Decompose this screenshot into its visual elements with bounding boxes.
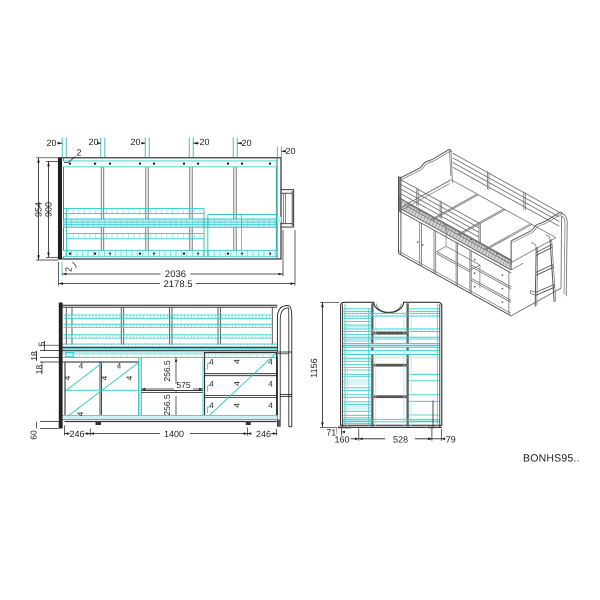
svg-text:1400: 1400 (164, 429, 184, 439)
svg-text:2: 2 (76, 148, 81, 158)
svg-text:900: 900 (44, 202, 54, 217)
svg-text:20: 20 (199, 137, 209, 147)
svg-text:20: 20 (88, 137, 98, 147)
svg-text:20: 20 (130, 137, 140, 147)
svg-text:256.5: 256.5 (162, 360, 172, 382)
svg-text:4: 4 (117, 362, 122, 371)
svg-text:20: 20 (46, 138, 56, 148)
svg-text:20: 20 (241, 138, 251, 148)
svg-text:4: 4 (76, 411, 85, 416)
svg-text:4: 4 (209, 358, 214, 367)
svg-text:4: 4 (233, 403, 242, 408)
svg-text:528: 528 (393, 435, 408, 445)
svg-text:575: 575 (176, 380, 190, 390)
svg-text:18: 18 (34, 365, 44, 375)
svg-text:4: 4 (268, 358, 273, 367)
svg-text:4: 4 (233, 381, 242, 386)
svg-text:246: 246 (69, 429, 84, 439)
svg-text:4: 4 (100, 375, 109, 380)
svg-text:4: 4 (125, 375, 134, 380)
svg-text:60: 60 (29, 430, 39, 440)
svg-text:2: 2 (64, 267, 74, 272)
svg-text:246: 246 (256, 429, 271, 439)
svg-text:4: 4 (233, 359, 242, 364)
svg-text:256.5: 256.5 (162, 394, 172, 416)
svg-text:4: 4 (63, 375, 72, 380)
svg-text:BONHS95..: BONHS95.. (523, 453, 580, 465)
svg-text:18: 18 (29, 351, 39, 361)
svg-text:79: 79 (446, 435, 456, 445)
svg-text:160: 160 (334, 434, 349, 444)
svg-text:4: 4 (268, 401, 273, 410)
svg-text:5: 5 (37, 341, 47, 346)
svg-text:20: 20 (285, 146, 295, 156)
svg-text:1156: 1156 (309, 358, 319, 377)
svg-text:2178.5: 2178.5 (163, 279, 192, 290)
svg-text:4: 4 (268, 380, 273, 389)
svg-text:4: 4 (209, 380, 214, 389)
svg-text:954: 954 (34, 202, 44, 217)
svg-text:4: 4 (79, 362, 84, 371)
svg-text:4: 4 (209, 401, 214, 410)
